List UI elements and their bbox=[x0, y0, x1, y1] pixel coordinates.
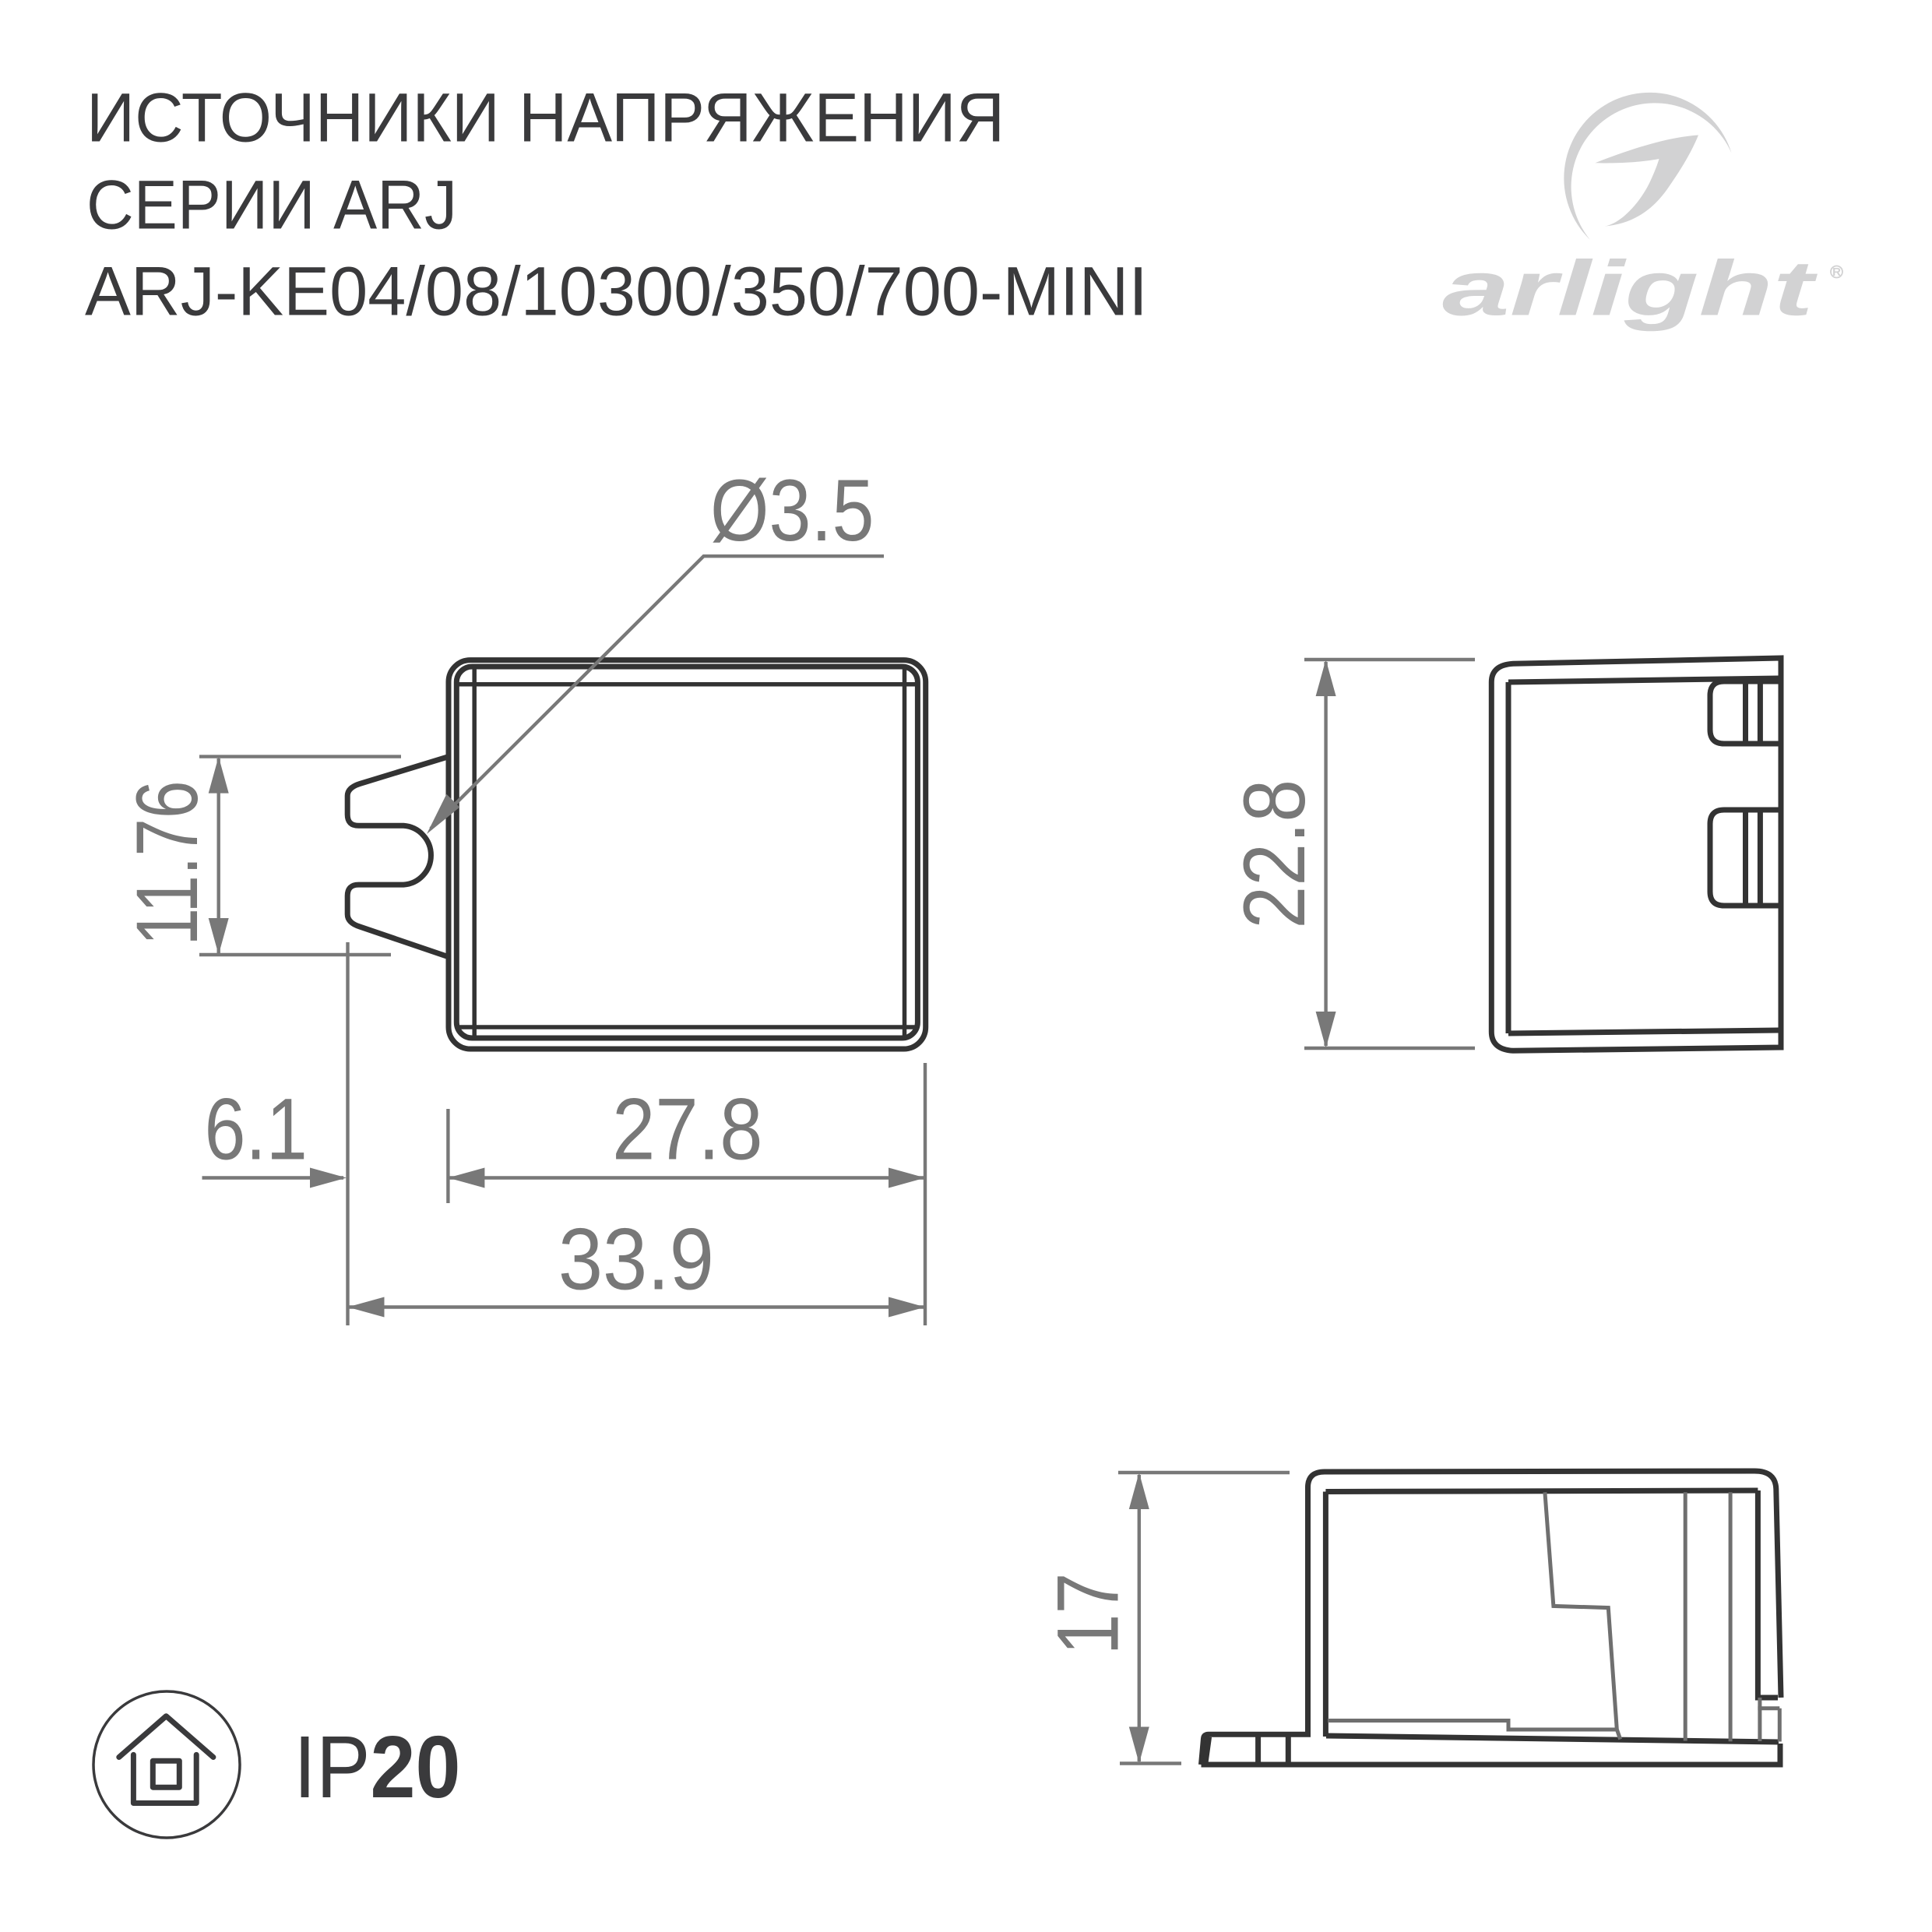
svg-text:ARJ-KE04/08/10300/350/700-MINI: ARJ-KE04/08/10300/350/700-MINI bbox=[85, 252, 1148, 329]
svg-text:33.9: 33.9 bbox=[558, 1211, 714, 1308]
svg-text:R: R bbox=[1832, 266, 1841, 279]
svg-text:17: 17 bbox=[1040, 1573, 1137, 1656]
svg-text:arlight: arlight bbox=[1442, 245, 1818, 332]
svg-text:Ø3.5: Ø3.5 bbox=[710, 463, 874, 560]
svg-text:27.8: 27.8 bbox=[612, 1081, 762, 1178]
svg-text:22.8: 22.8 bbox=[1226, 779, 1323, 929]
svg-text:6.1: 6.1 bbox=[204, 1081, 307, 1178]
svg-text:11.76: 11.76 bbox=[119, 780, 216, 945]
svg-text:ИСТОЧНИКИ НАПРЯЖЕНИЯ: ИСТОЧНИКИ НАПРЯЖЕНИЯ bbox=[86, 79, 1005, 156]
svg-text:IP20: IP20 bbox=[294, 1719, 461, 1817]
svg-text:СЕРИИ ARJ: СЕРИИ ARJ bbox=[86, 167, 457, 244]
